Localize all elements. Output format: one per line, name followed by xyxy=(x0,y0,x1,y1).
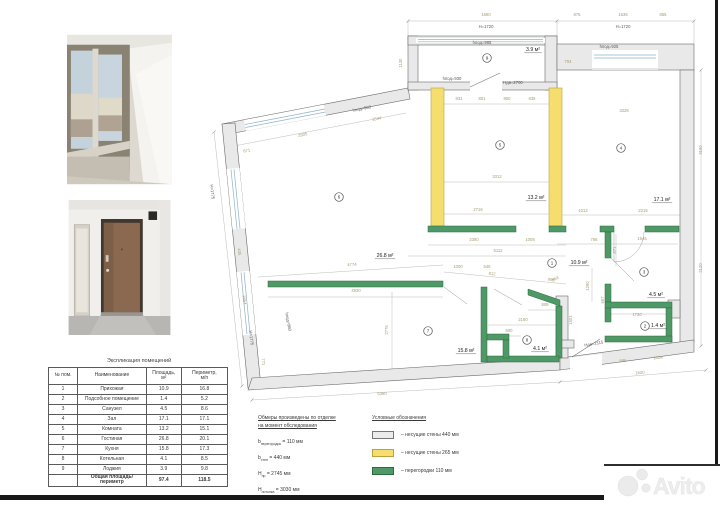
dim-label: hпод=930 xyxy=(443,76,462,81)
room-number: 7 xyxy=(427,329,430,334)
legend-label: – несущие стены 440 мм xyxy=(401,432,459,438)
page-bottom-edge xyxy=(0,495,607,500)
legend-label: – несущие стены 265 мм xyxy=(401,450,459,456)
dim-label: 1680 xyxy=(481,12,491,17)
table-row: 1Прихожая10.916.8 xyxy=(49,385,228,395)
room-area-label: 17.1 м² xyxy=(654,197,671,203)
legend-swatch xyxy=(372,431,394,439)
value-cell: 5 xyxy=(49,425,78,435)
room-area-label: 4.5 м² xyxy=(649,292,663,298)
wall-legend: Условные обозначения – несущие стены 440… xyxy=(372,415,522,475)
page-right-edge xyxy=(715,0,718,466)
note-subscript: потолка xyxy=(262,490,275,494)
room-number: 9 xyxy=(486,56,489,61)
dim-label: 831 xyxy=(456,96,464,101)
room-area-label: 26.8 м² xyxy=(377,253,394,259)
dim-label: 766 xyxy=(591,237,599,242)
dim-label: 812 xyxy=(488,271,496,277)
dim-label: hпод=925 xyxy=(600,44,619,49)
legend-swatch xyxy=(372,449,394,457)
value-cell: 6 xyxy=(49,435,78,445)
value-cell: 10.9 xyxy=(146,385,181,395)
dim-label: 5112 xyxy=(493,248,503,253)
legend-item: – несущие стены 440 мм xyxy=(372,431,522,439)
room-name-cell: Гостиная xyxy=(78,435,147,445)
rooms-explication: Экспликация помещений № пом. Наименовани… xyxy=(48,358,230,487)
dim-label: H=1775 xyxy=(209,184,216,200)
dim-label: 586 xyxy=(619,358,627,364)
table-row: 5Комната13.215.1 xyxy=(49,425,228,435)
room-area-label: 1.4 м² xyxy=(651,323,665,329)
value-cell: 5.2 xyxy=(181,395,227,405)
table-title: Экспликация помещений xyxy=(48,358,230,364)
value-cell: 1.4 xyxy=(146,395,181,405)
rooms-table: № пом. Наименование Площадь, м² Периметр… xyxy=(48,367,228,487)
room-area-label: 15.8 м² xyxy=(458,348,475,354)
dim-label: 704 xyxy=(565,59,573,64)
dim-label: 1024 xyxy=(653,355,663,361)
dim-label: 1290 xyxy=(585,281,590,291)
survey-notes: Обмеры произведены по отделке на момент … xyxy=(258,415,370,494)
room-number-circle xyxy=(640,268,649,277)
windows xyxy=(227,38,659,335)
note-value: = 3030 мм xyxy=(274,487,299,493)
dim-label: 1620 xyxy=(635,370,645,376)
room-number-circle xyxy=(335,193,344,202)
dim-label: 5360 xyxy=(377,391,387,397)
dim-label: 1130 xyxy=(398,58,403,68)
value-cell: 3 xyxy=(49,405,78,415)
notes-line1: Обмеры произведены по отделке xyxy=(258,415,336,421)
room-name-cell: Прихожая xyxy=(78,385,147,395)
avito-logo: Avito xyxy=(604,466,720,500)
bearing-walls-265 xyxy=(431,88,562,226)
legend-label: – перегородки 110 мм xyxy=(401,468,452,474)
value-cell: 8.5 xyxy=(181,455,227,465)
dim-label: 1544 xyxy=(372,115,383,122)
dim-label: 3312 xyxy=(492,174,502,179)
col-perimeter: Периметр, м/п xyxy=(181,368,227,385)
room-name-cell: Котельная xyxy=(78,455,147,465)
dim-label: 875 xyxy=(574,12,582,17)
dim-label: 1000 xyxy=(453,264,463,269)
value-cell: 17.1 xyxy=(181,415,227,425)
table-row: 6Гостиная26.820.1 xyxy=(49,435,228,445)
room-number-circle xyxy=(617,144,626,153)
room-labels: 110.9 м²21.4 м²34.5 м²417.1 м²513.2 м²62… xyxy=(335,47,672,354)
value-cell: 9.8 xyxy=(181,465,227,475)
legend-title: Условные обозначения xyxy=(372,415,522,421)
note-value: = 110 мм xyxy=(281,439,303,445)
col-name: Наименование xyxy=(78,368,147,385)
dim-label: 671 xyxy=(243,147,251,153)
table-row: 8Котельная4.18.5 xyxy=(49,455,228,465)
room-name-cell: Кухня xyxy=(78,445,147,455)
room-number-circle xyxy=(641,322,650,331)
dim-label: 958 xyxy=(547,277,555,283)
dim-label: hпод=960 xyxy=(352,104,372,113)
room-number-circle xyxy=(548,259,557,268)
room-number: 1 xyxy=(551,261,554,266)
dim-label: 2160 xyxy=(518,317,528,322)
dim-label: 545 xyxy=(484,264,492,269)
balcony-photo xyxy=(67,34,172,185)
notes-heading: Обмеры произведены по отделке на момент … xyxy=(258,415,370,430)
table-header-row: № пом. Наименование Площадь, м² Периметр… xyxy=(49,368,228,385)
note-value: = 440 мм xyxy=(268,455,290,461)
room-number: 3 xyxy=(643,270,646,275)
value-cell: 15.8 xyxy=(146,445,181,455)
room-name-cell: Зал xyxy=(78,415,147,425)
dim-label: 809 xyxy=(542,302,550,307)
dim-label: 801 xyxy=(479,96,487,101)
balcony-photo-image xyxy=(67,34,172,185)
value-cell: 3.9 xyxy=(146,465,181,475)
total-perimeter-cell: 118.5 xyxy=(181,475,227,487)
value-cell: 8.6 xyxy=(181,405,227,415)
dim-label: 871 xyxy=(612,246,617,254)
total-label-cell: Общая площадь/периметр xyxy=(78,475,147,487)
survey-note-line: bстен = 440 мм xyxy=(258,455,370,462)
table-row: 3Санузел4.58.6 xyxy=(49,405,228,415)
room-name-cell: Лоджия xyxy=(78,465,147,475)
dim-label: hпод=960 xyxy=(284,312,292,332)
room-area-label: 4.1 м² xyxy=(533,346,547,352)
dim-label: 2805 xyxy=(298,131,309,138)
table-row: 9Лоджия3.99.8 xyxy=(49,465,228,475)
dim-label: 855 xyxy=(660,12,668,17)
col-area: Площадь, м² xyxy=(146,368,181,385)
table-total-row: Общая площадь/периметр97.4118.5 xyxy=(49,475,228,487)
dim-label: 2120 xyxy=(698,263,703,273)
dim-label: 2864 xyxy=(242,295,248,305)
avito-logo-circles xyxy=(618,469,650,496)
avito-watermark: Avito xyxy=(604,464,720,502)
value-cell: 17.1 xyxy=(146,415,181,425)
table-row: 7Кухня15.817.3 xyxy=(49,445,228,455)
room-area-label: 13.2 м² xyxy=(528,195,545,201)
dim-label: 1730 xyxy=(632,312,642,317)
room-area-label: 10.9 м² xyxy=(571,260,588,266)
value-cell: 15.1 xyxy=(181,425,227,435)
room-name-cell: Комната xyxy=(78,425,147,435)
survey-note-line: bперегородок = 110 мм xyxy=(258,439,370,446)
room-number: 8 xyxy=(526,338,529,343)
value-cell: 4.5 xyxy=(146,405,181,415)
value-cell: 20.1 xyxy=(181,435,227,445)
note-value: = 2745 мм xyxy=(265,471,290,477)
value-cell: 16.8 xyxy=(181,385,227,395)
dim-label: 500 xyxy=(506,328,514,333)
legend-item: – перегородки 110 мм xyxy=(372,467,522,475)
total-area-cell: 97.4 xyxy=(146,475,181,487)
bearing-walls-440 xyxy=(222,36,694,390)
legend-swatch xyxy=(372,467,394,475)
note-subscript: стен xyxy=(261,458,268,462)
note-subscript: перегородок xyxy=(261,442,281,446)
room-number-circle xyxy=(483,54,492,63)
dim-label: 835 xyxy=(529,96,537,101)
dim-label: Hдв=2115 xyxy=(584,339,604,347)
table-row: 2Подсобное помещение1.45.2 xyxy=(49,395,228,405)
room-number: 5 xyxy=(499,143,502,148)
dim-label: 2215 xyxy=(638,208,648,213)
dim-label: hпод=965 xyxy=(473,40,492,45)
dim-label: 771 xyxy=(261,358,267,366)
dimension-lines xyxy=(213,20,708,402)
dim-label: 4774 xyxy=(347,262,357,268)
dim-label: 3190 xyxy=(698,145,703,155)
dim-label: 435 xyxy=(237,248,243,256)
room-area-label: 3.9 м² xyxy=(526,47,540,53)
value-cell: 1 xyxy=(49,385,78,395)
avito-logo-text: Avito xyxy=(653,473,706,499)
value-cell: 26.8 xyxy=(146,435,181,445)
dim-label: 1945 xyxy=(637,236,647,241)
dim-label: Hдв=2700 xyxy=(503,80,523,85)
dim-label: 667 xyxy=(600,296,605,304)
value-cell: 4 xyxy=(49,415,78,425)
partitions-110 xyxy=(268,226,679,362)
legend-item: – несущие стены 265 мм xyxy=(372,449,522,457)
room-name-cell: Санузел xyxy=(78,405,147,415)
value-cell: 4.1 xyxy=(146,455,181,465)
dimension-labels: 1680H=1720hпод=96511307048751636855H=172… xyxy=(209,12,703,396)
dim-label: H=1720 xyxy=(479,24,494,29)
dim-label: 863 xyxy=(551,275,560,283)
survey-note-line: Hпотолка = 3030 мм xyxy=(258,487,370,494)
dim-label: H=1720 xyxy=(616,24,631,29)
doors xyxy=(444,73,644,369)
dim-label: 1009 xyxy=(525,237,535,242)
room-number: 2 xyxy=(644,324,647,329)
dim-label: 3326 xyxy=(619,108,629,113)
value-cell: 17.3 xyxy=(181,445,227,455)
notes-line2: на момент обследования xyxy=(258,423,317,429)
dim-label: 1501 xyxy=(568,315,573,325)
dim-label: 850 xyxy=(504,96,512,101)
value-cell: 13.2 xyxy=(146,425,181,435)
dim-label: 1636 xyxy=(618,12,628,17)
value-cell: 2 xyxy=(49,395,78,405)
hallway-photo xyxy=(67,200,172,335)
dim-label: 2776 xyxy=(384,325,389,335)
value-cell: 7 xyxy=(49,445,78,455)
dim-label: H=1775 xyxy=(248,330,255,346)
room-number: 6 xyxy=(338,195,341,200)
room-number-circle xyxy=(523,336,532,345)
value-cell: 8 xyxy=(49,455,78,465)
dim-label: 2716 xyxy=(473,207,483,212)
room-number-circle xyxy=(424,327,433,336)
dim-label: 1012 xyxy=(578,208,588,213)
scanned-floor-plan-page: Экспликация помещений № пом. Наименовани… xyxy=(0,0,720,508)
table-row: 4Зал17.117.1 xyxy=(49,415,228,425)
hallway-photo-image xyxy=(67,200,172,335)
col-number: № пом. xyxy=(49,368,78,385)
empty-cell xyxy=(49,475,78,487)
dim-label: 4930 xyxy=(351,288,361,293)
value-cell: 9 xyxy=(49,465,78,475)
survey-note-line: Hпр = 2745 мм xyxy=(258,471,370,478)
room-number: 4 xyxy=(620,146,623,151)
room-number-circle xyxy=(496,141,505,150)
room-name-cell: Подсобное помещение xyxy=(78,395,147,405)
dim-label: 2380 xyxy=(469,237,479,242)
